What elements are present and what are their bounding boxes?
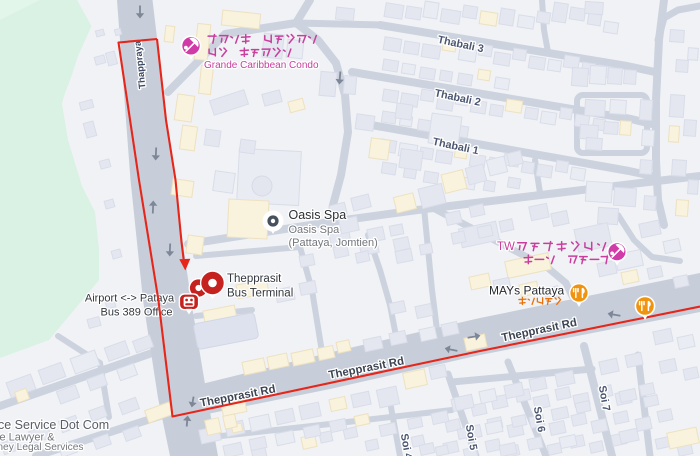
svg-text:Grande Caribbean Condo: Grande Caribbean Condo — [204, 60, 319, 71]
svg-text:(Pattaya, Jomtien): (Pattaya, Jomtien) — [289, 237, 378, 249]
svg-text:Airport <-> Pataya: Airport <-> Pataya — [85, 293, 175, 305]
svg-text:TW: TW — [497, 241, 515, 253]
svg-text:Bus Terminal: Bus Terminal — [227, 288, 293, 300]
svg-text:ce Service Dot Com: ce Service Dot Com — [0, 418, 109, 432]
svg-text:Bus 389 Office: Bus 389 Office — [101, 307, 173, 319]
svg-text:Thepprasit: Thepprasit — [227, 273, 282, 285]
svg-text:rney Legal Services: rney Legal Services — [0, 442, 83, 453]
svg-text:Oasis Spa: Oasis Spa — [289, 208, 347, 222]
svg-text:Oasis Spa: Oasis Spa — [289, 224, 341, 236]
svg-text:MAYs Pattaya: MAYs Pattaya — [489, 284, 564, 298]
